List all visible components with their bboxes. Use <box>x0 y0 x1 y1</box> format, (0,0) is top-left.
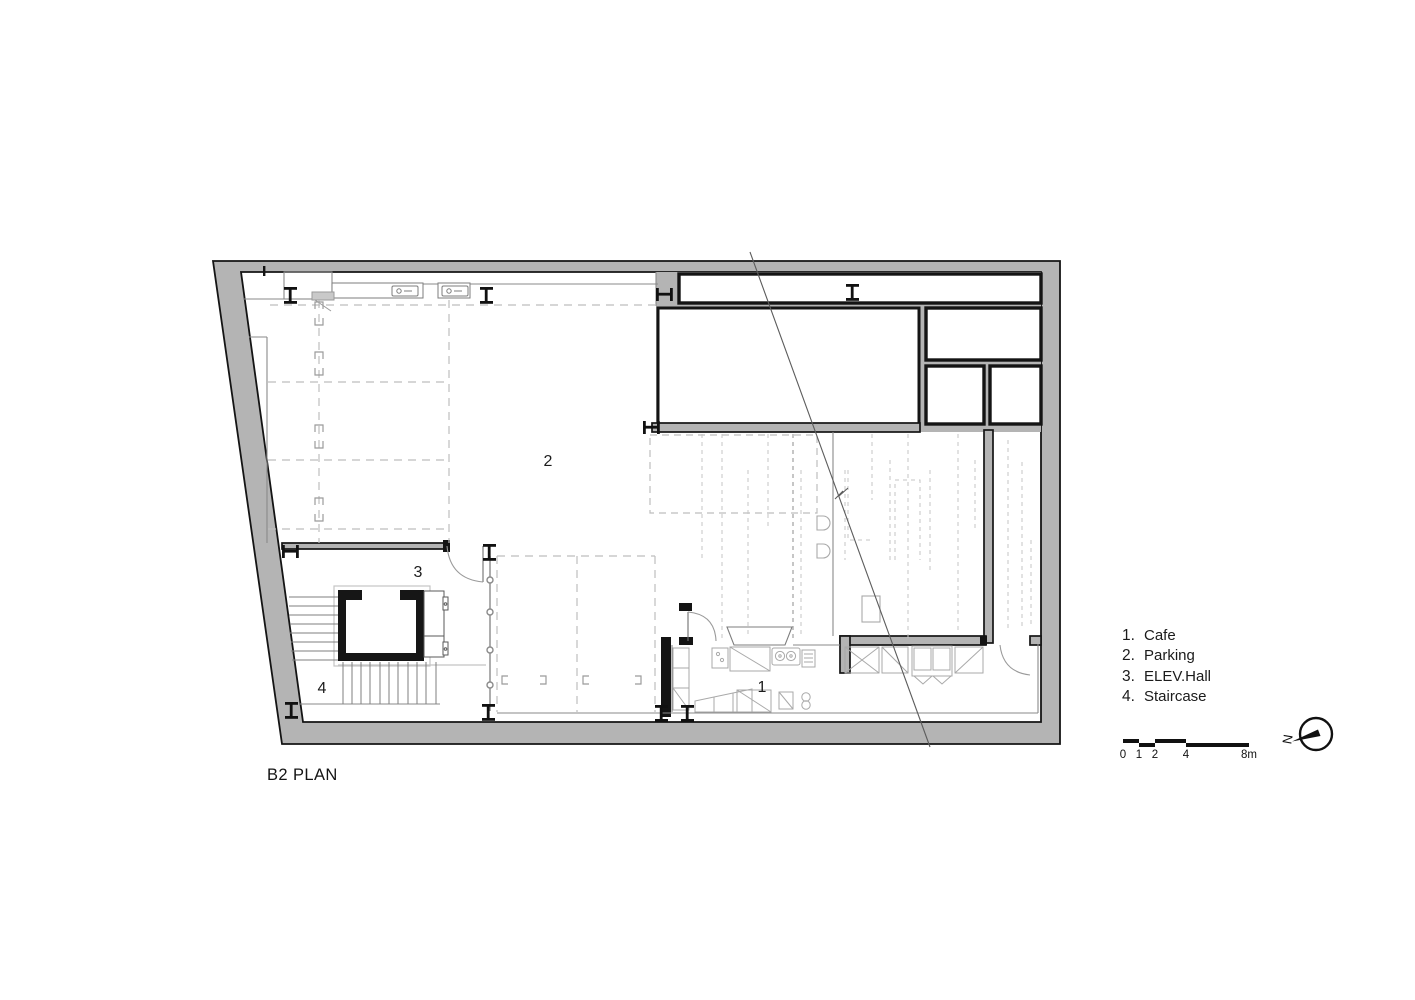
north-needle <box>1292 730 1321 742</box>
north-label: N <box>1280 733 1296 745</box>
legend-label: Parking <box>1144 647 1195 664</box>
scale-segment <box>1155 739 1186 743</box>
door-elev-hall <box>447 546 483 582</box>
cafe-vestibule <box>727 627 792 645</box>
scale-tick: 8m <box>1241 749 1257 761</box>
scale-segment <box>1186 743 1249 747</box>
column-i-beam <box>480 287 493 304</box>
floor-plan: 2 3 4 1 <box>0 0 1415 1000</box>
legend-number: 3. <box>1122 668 1144 686</box>
legend-label: Staircase <box>1144 688 1207 705</box>
wall-door-stub-right <box>1030 636 1041 645</box>
room-right-small-2 <box>990 366 1041 424</box>
wall-kitchen-vertical <box>984 430 993 643</box>
legend-number: 2. <box>1122 647 1144 665</box>
room-large <box>658 308 919 424</box>
north-arrow: N <box>1280 705 1342 763</box>
elevator-machine-room <box>424 591 448 657</box>
legend-item-staircase: 4. Staircase <box>1122 688 1211 708</box>
scale-segment <box>1123 739 1139 743</box>
room-long-top <box>679 274 1041 303</box>
legend-number: 1. <box>1122 627 1144 645</box>
legend-item-elev-hall: 3. ELEV.Hall <box>1122 668 1211 688</box>
room-label-cafe: 1 <box>758 679 767 696</box>
elevator-shaft-walls <box>338 590 424 661</box>
legend-item-cafe: 1. Cafe <box>1122 627 1211 647</box>
room-right-wide <box>926 308 1041 360</box>
page-title: B2 PLAN <box>267 766 338 785</box>
kitchen-dashed-equipment <box>702 434 1031 638</box>
service-block <box>656 272 1041 432</box>
scale-tick: 4 <box>1183 749 1189 761</box>
cafe-lower-counter <box>695 689 810 712</box>
cafe-bar-counter <box>673 647 815 710</box>
scale-tick: 1 <box>1136 749 1142 761</box>
column-i-beam <box>284 287 297 304</box>
legend: 1. Cafe 2. Parking 3. ELEV.Hall 4. Stair… <box>1122 627 1211 709</box>
wall-kitchen-horizontal <box>840 636 986 645</box>
staircase <box>289 597 436 704</box>
wall-sinks <box>817 516 830 558</box>
room-label-staircase: 4 <box>318 680 327 697</box>
corner-tick <box>263 266 265 276</box>
top-counters <box>312 283 470 311</box>
doors <box>447 546 1030 675</box>
drawing-sheet: 2 3 4 1 1. Cafe 2. Parking 3. ELEV.Hall … <box>0 0 1415 1000</box>
cafe-fixtures <box>673 646 983 712</box>
elevator-core <box>334 586 486 666</box>
kitchen-counter-row <box>845 646 983 684</box>
legend-label: ELEV.Hall <box>1144 668 1211 685</box>
room-label-parking: 2 <box>544 453 553 470</box>
column-i-beam <box>483 544 496 561</box>
room-right-small-1 <box>926 366 984 424</box>
column-i-beam <box>482 704 495 721</box>
legend-number: 4. <box>1122 688 1144 706</box>
wall-mid-horizontal <box>652 423 920 432</box>
vent-fixture-1 <box>392 286 418 296</box>
scale-bar: 0 1 2 4 8m <box>1123 739 1252 765</box>
scale-tick: 0 <box>1120 749 1126 761</box>
door-cafe-entrance <box>688 612 716 641</box>
room-label-elev-hall: 3 <box>414 564 423 581</box>
glass-partition <box>487 556 493 711</box>
door-kitchen-storage <box>1000 645 1030 675</box>
scale-segment <box>1139 743 1155 747</box>
scale-tick: 2 <box>1152 749 1158 761</box>
legend-item-parking: 2. Parking <box>1122 647 1211 667</box>
vent-fixture-2 <box>442 286 468 296</box>
wheel-stops <box>315 302 641 684</box>
wall-elev-hall <box>282 543 447 549</box>
legend-label: Cafe <box>1144 627 1176 644</box>
